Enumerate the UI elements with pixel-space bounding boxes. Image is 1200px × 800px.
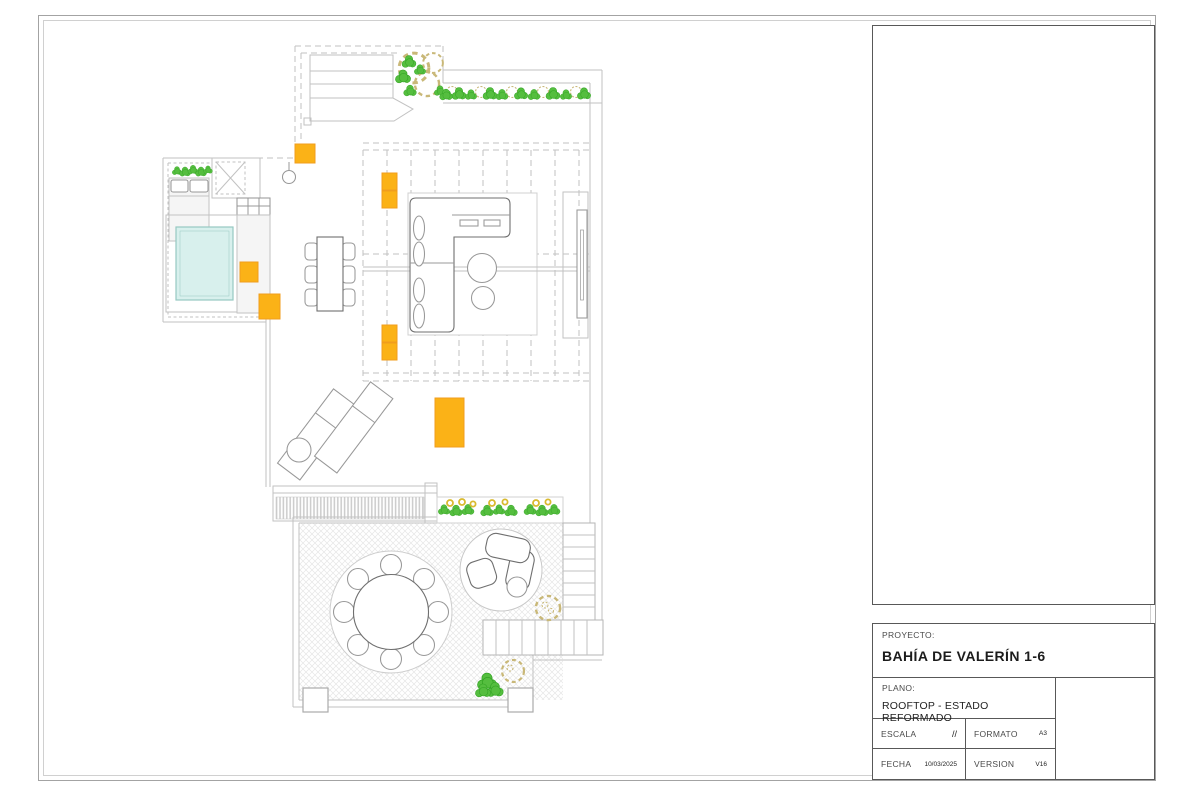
sun-loungers [278,382,393,480]
wall-light [283,162,296,184]
round-table [354,575,429,650]
round-dining-set-8 [330,551,452,673]
tv-screen [577,210,587,318]
tv-wall [563,192,588,338]
project-name: BAHÍA DE VALERÍN 1-6 [882,648,1145,664]
drawing-sheet: PROYECTO: BAHÍA DE VALERÍN 1-6 PLANO: RO… [0,0,1200,800]
plan-row: PLANO: ROOFTOP - ESTADO REFORMADO [873,678,1055,719]
scale-format-row: ESCALA // FORMATO A3 [873,719,1055,749]
dining-table-6 [305,237,355,311]
west-boundary-wall [266,318,270,487]
lounger-side-table [287,438,311,462]
north-plant-row [440,87,591,100]
side-table [472,287,495,310]
project-label: PROYECTO: [882,630,1145,640]
date-value: 10/03/2025 [924,761,957,768]
plan-label: PLANO: [882,683,1046,693]
format-value: A3 [1039,730,1047,737]
south-plant-strip [437,497,563,523]
bed-plants [172,165,212,176]
project-row: PROYECTO: BAHÍA DE VALERÍN 1-6 [873,624,1154,678]
coffee-table [468,254,497,283]
title-block-empty-cell [1056,678,1154,779]
version-value: V16 [1035,761,1047,768]
dining-table [317,237,343,311]
format-label: FORMATO [974,729,1018,739]
lounge-table [507,577,527,597]
bedroom-wing [163,158,270,322]
scale-value: // [952,729,957,739]
version-label: VERSION [974,759,1014,769]
date-version-row: FECHA 10/03/2025 VERSION V16 [873,749,1055,779]
jacuzzi [166,215,238,312]
title-block: PROYECTO: BAHÍA DE VALERÍN 1-6 PLANO: RO… [872,623,1155,780]
lounge-sofa-set [363,193,590,335]
elevation-panel [872,25,1155,605]
scale-label: ESCALA [881,729,916,739]
date-label: FECHA [881,759,911,769]
skylight [216,162,245,194]
circular-lounge [460,529,542,611]
stair-bulkhead [304,55,413,125]
